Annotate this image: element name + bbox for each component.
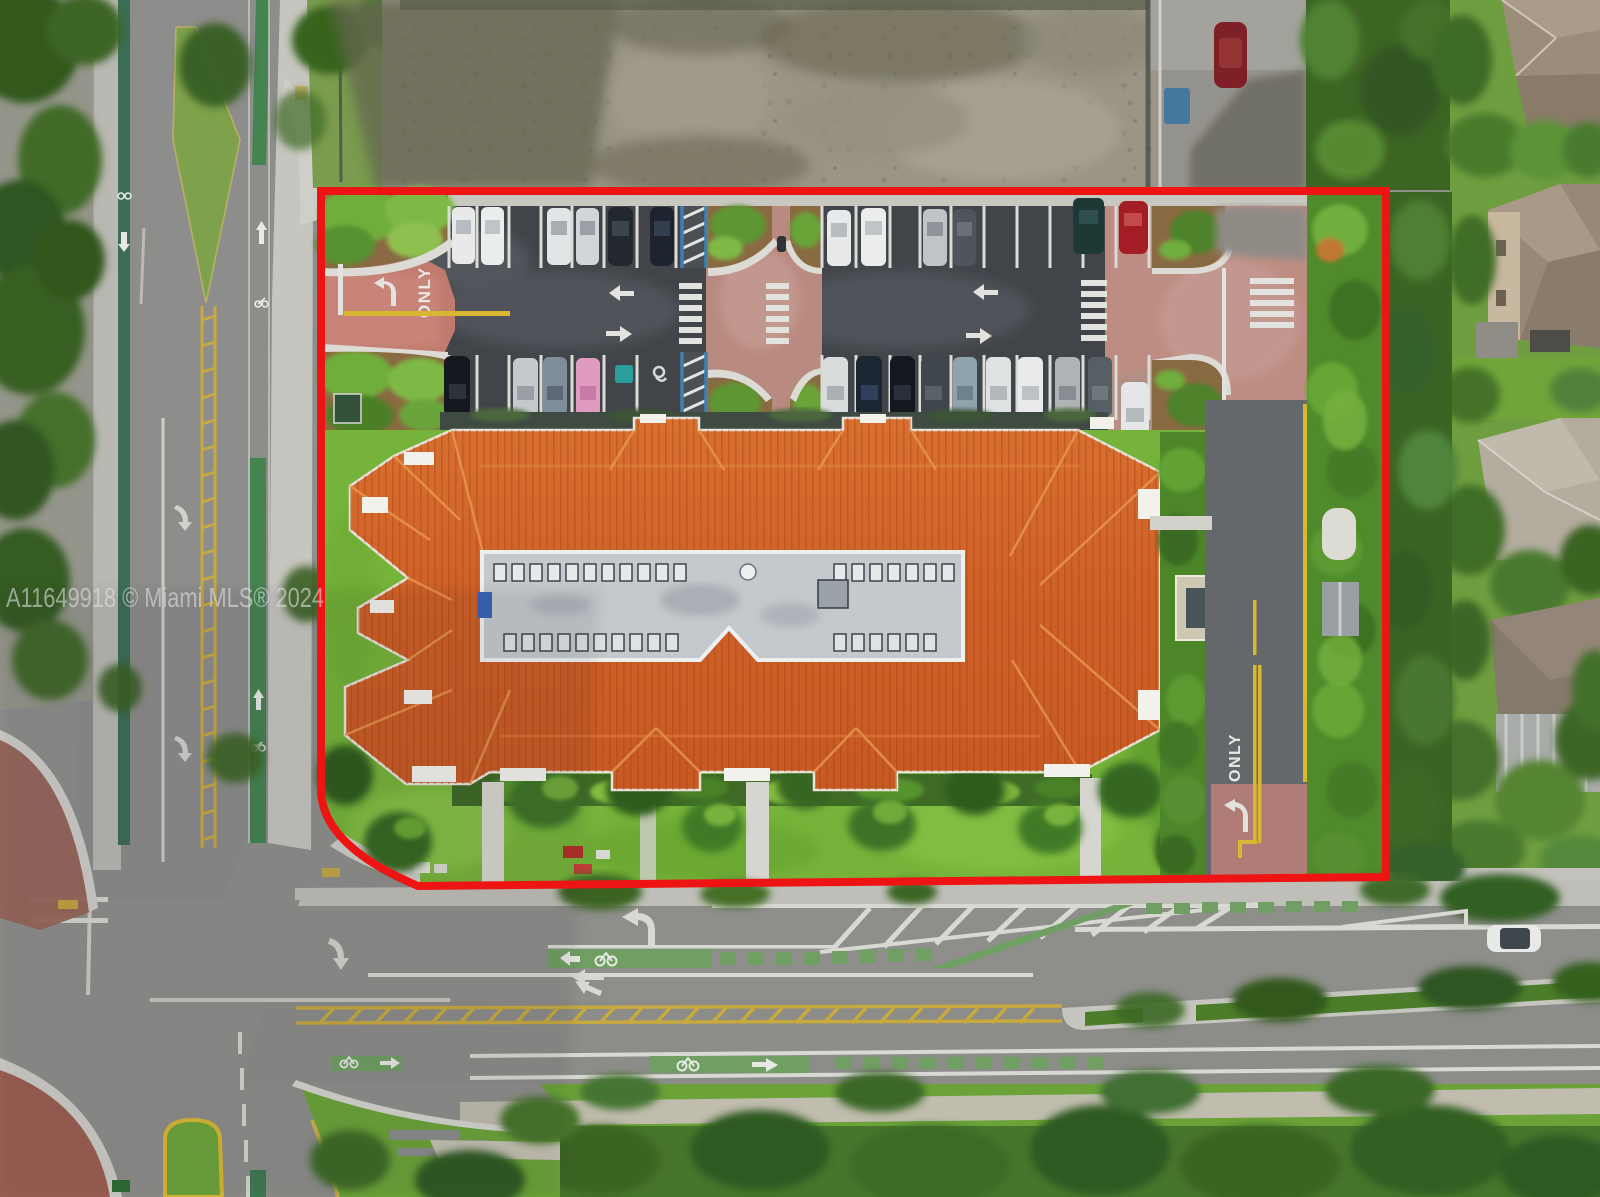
svg-text:A11649918 © Miami MLS® 2024: A11649918 © Miami MLS® 2024 <box>6 582 324 613</box>
svg-text:ONLY: ONLY <box>1227 733 1244 782</box>
svg-text:ONLY: ONLY <box>415 266 434 318</box>
